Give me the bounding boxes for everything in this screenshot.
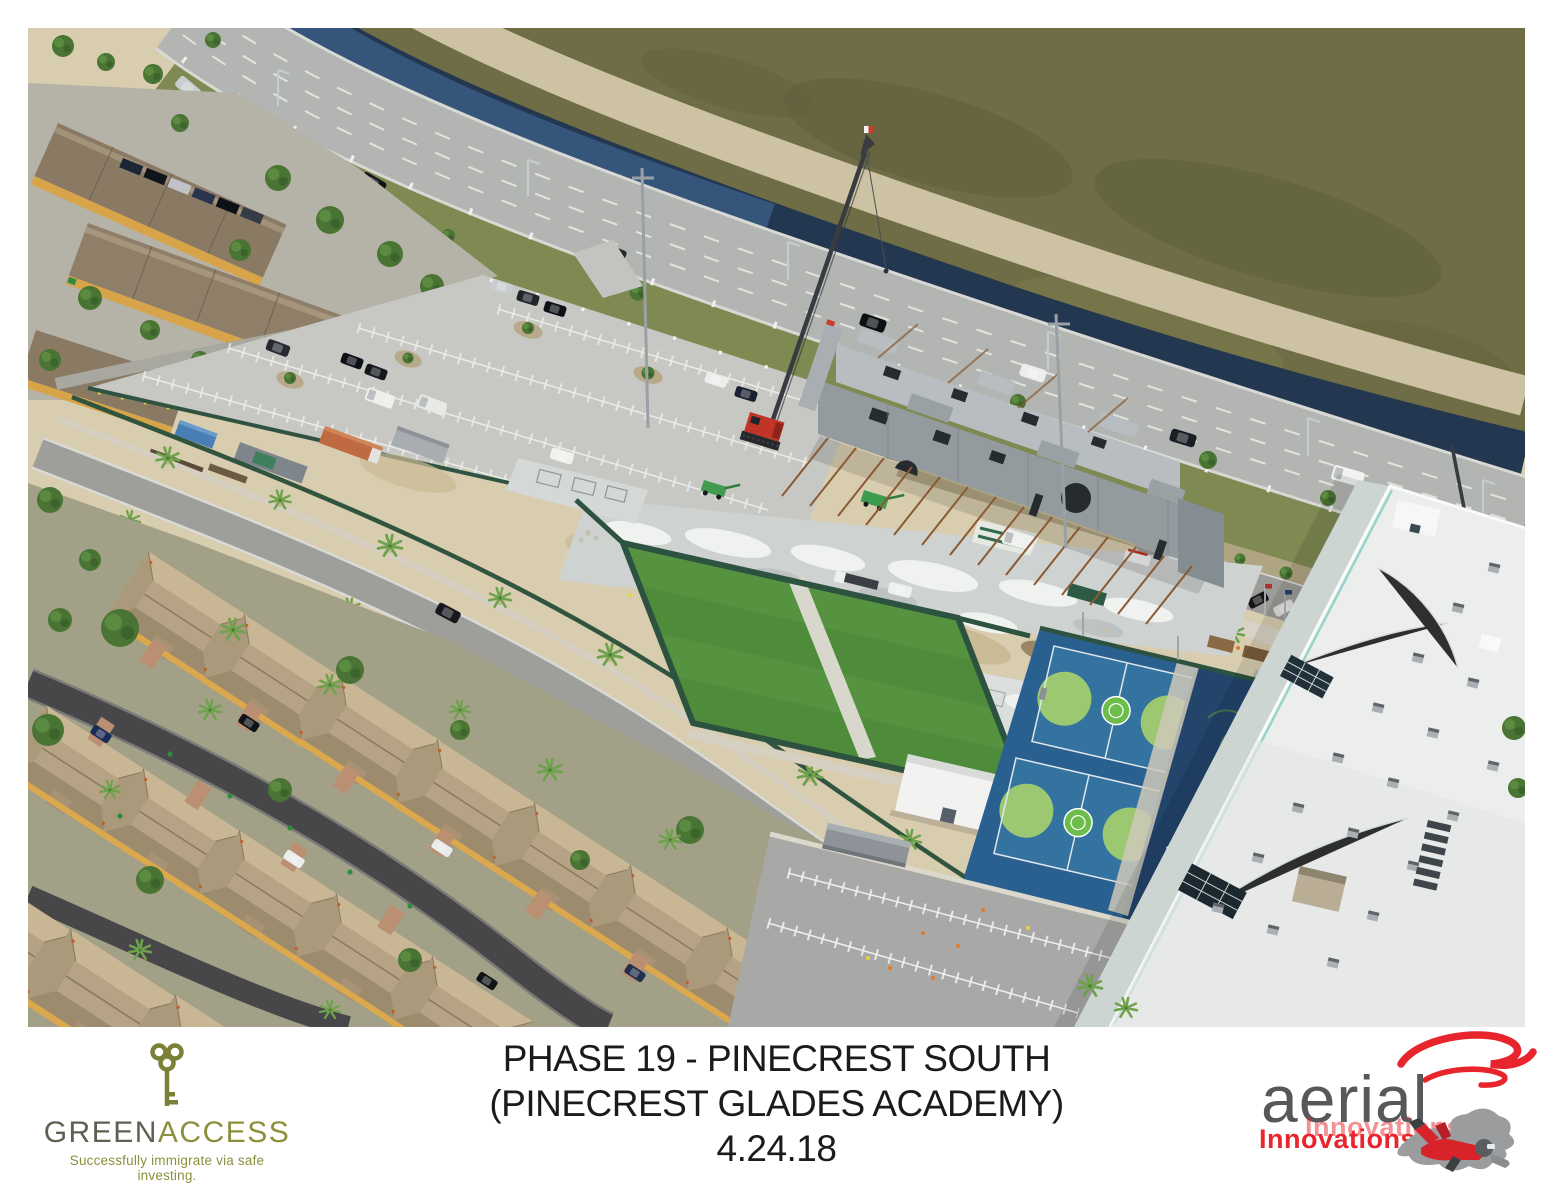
- skydiver-icon: [1391, 1102, 1526, 1192]
- caption-title-line2: (PINECREST GLADES ACADEMY): [300, 1081, 1253, 1126]
- aerial-photo-scene: [28, 28, 1525, 1027]
- key-icon: [146, 1042, 188, 1112]
- aerial-innovations-logo: aerial Innovations Innovations: [1243, 1026, 1543, 1198]
- aerial-photo: [28, 28, 1525, 1027]
- progress-photo-page: GREENACCESS Successfully immigrate via s…: [0, 0, 1553, 1200]
- caption-date: 4.24.18: [300, 1126, 1253, 1171]
- photo-caption: PHASE 19 - PINECREST SOUTH (PINECREST GL…: [300, 1036, 1253, 1171]
- greenaccess-word-green: GREEN: [44, 1116, 158, 1149]
- greenaccess-logo: GREENACCESS Successfully immigrate via s…: [42, 1042, 292, 1183]
- greenaccess-word-access: ACCESS: [158, 1116, 290, 1149]
- greenaccess-wordmark: GREENACCESS: [42, 1116, 292, 1150]
- caption-title-line1: PHASE 19 - PINECREST SOUTH: [300, 1036, 1253, 1081]
- greenaccess-tagline: Successfully immigrate via safe investin…: [42, 1153, 292, 1183]
